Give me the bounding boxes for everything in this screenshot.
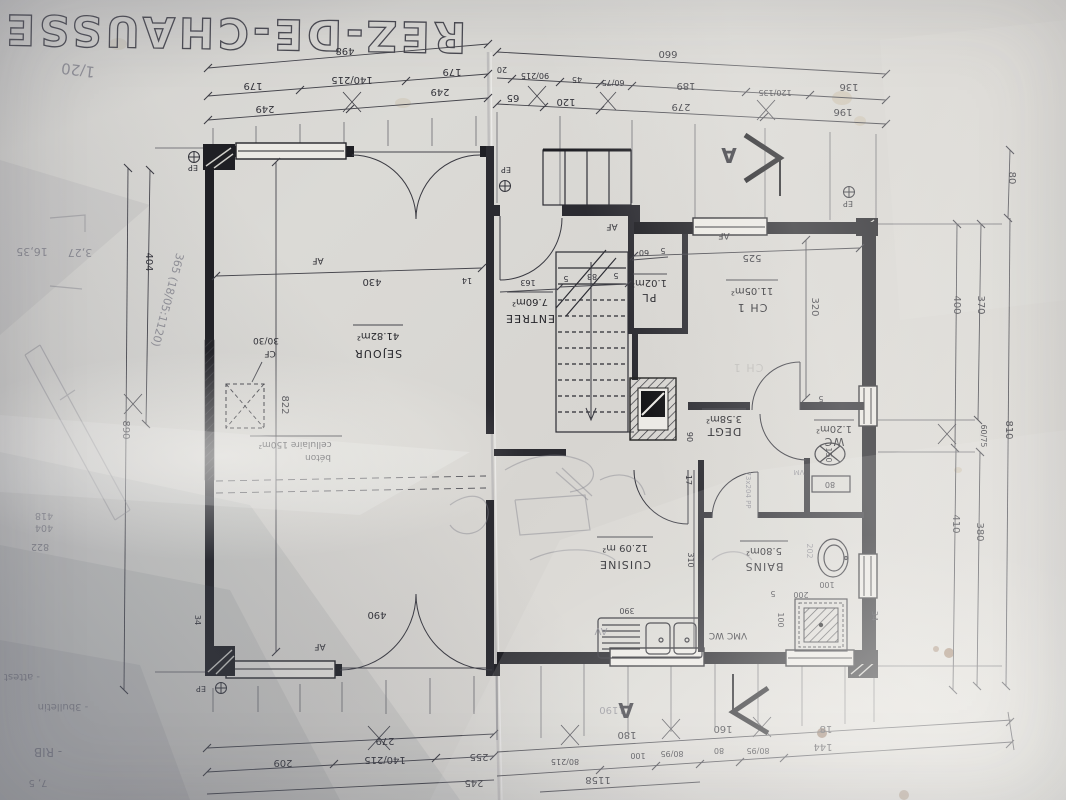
- pencil-note: - 3bulletin: [38, 701, 89, 712]
- dim-label: 430: [362, 276, 381, 287]
- walls: [203, 143, 878, 678]
- ep-label: EP: [188, 163, 198, 172]
- ep-label: EP: [501, 165, 511, 174]
- dim-label: 100: [630, 751, 645, 760]
- dim-label: 34: [870, 611, 879, 621]
- ep-label: EP: [196, 684, 206, 693]
- dim-label: 370: [975, 295, 986, 314]
- dim-label: 249: [430, 86, 449, 97]
- dim-label: 245: [464, 777, 483, 788]
- vmc-label: VMC WC: [709, 630, 747, 640]
- dim-label: 380: [974, 522, 985, 541]
- dim-chain-bottom: 279 209 140/215 255 245 180 160 18 80/21…: [203, 704, 1014, 794]
- washbasin: [818, 539, 848, 577]
- pencil-note: AV: [594, 625, 607, 636]
- dim-label: 525: [742, 252, 761, 263]
- dim-label: 150: [824, 447, 833, 462]
- dim-label: 65: [507, 92, 520, 103]
- shower: [795, 599, 847, 651]
- dim-label: 890: [120, 420, 131, 439]
- dim-label: 100: [819, 580, 834, 589]
- dim-label: 404: [143, 252, 154, 271]
- room-area-sejour: 41.82m²: [357, 330, 399, 341]
- dim-label: 144: [813, 741, 832, 752]
- dim-label: 196: [833, 106, 852, 117]
- dim-label: 209: [273, 757, 292, 768]
- window-label: AF: [606, 221, 617, 231]
- page-title: REZ-DE-CHAUSSEE: [0, 4, 467, 62]
- pencil-number: 202: [805, 543, 814, 558]
- pencil-calc: 3,27: [68, 246, 93, 259]
- dim-chain-top-right: 660 20 90/215 45 60/75 189 120/135 136 6…: [493, 48, 890, 128]
- dim-label: 200: [793, 590, 808, 599]
- cf-label: CF: [264, 348, 275, 358]
- ep-labels: EP EP EP EP: [188, 163, 853, 693]
- window-label: AF: [314, 641, 325, 651]
- dim-label: 120/135: [758, 88, 791, 97]
- dim-label: 163: [520, 278, 535, 287]
- dim-label: 180: [617, 729, 636, 740]
- room-name-wc: WC: [824, 435, 845, 448]
- dim-label: 5: [613, 271, 618, 280]
- room-name-sejour: SEJOUR: [354, 347, 402, 360]
- section-arrow-top: A: [721, 135, 780, 196]
- dim-label: 20: [497, 65, 507, 74]
- window-label: AF: [718, 230, 729, 240]
- dim-label: 120: [556, 96, 575, 107]
- dim-label: 810: [1003, 420, 1014, 439]
- room-name-degt: DEGT: [707, 425, 742, 438]
- dim-label: 18: [820, 723, 833, 734]
- dim-label: 410: [950, 514, 961, 533]
- dim-label: 5: [770, 589, 775, 598]
- room-area-ch1: 11.05m²: [731, 285, 773, 296]
- dim-label: 5: [818, 394, 823, 403]
- entry-steps: [543, 150, 631, 205]
- dim-label: 160: [713, 723, 732, 734]
- room-name-ch1: CH 1: [737, 301, 768, 314]
- room-area-degt: 3.58m²: [706, 413, 742, 424]
- dim-label: 5: [563, 274, 568, 283]
- dim-label: 279: [375, 735, 394, 746]
- dim-label: 400: [951, 295, 962, 314]
- chimney-flue: [630, 378, 676, 440]
- dim-label: 136: [839, 81, 858, 92]
- dim-label: 14: [462, 276, 472, 285]
- dim-label: 140/215: [364, 754, 406, 765]
- room-labels: 41.82m² SEJOUR 7.60m² ENTREE 1.02m² PL 1…: [353, 274, 854, 573]
- dim-label: 140/215: [331, 74, 373, 85]
- room-area-cuisine: 12.09 m²: [602, 542, 648, 553]
- pencil-number: 418: [35, 510, 53, 521]
- room-name-bains: BAINS: [744, 560, 783, 573]
- floorplan-drawing: REZ-DE-CHAUSSEE 498 179 140/215 179 249 …: [0, 0, 1066, 800]
- room-area-wc: 1.20m²: [816, 423, 852, 434]
- dim-label: 249: [255, 103, 274, 114]
- dim-label: 90: [685, 432, 694, 442]
- cf-duct: [226, 362, 264, 428]
- room-area-pl: 1.02m²: [631, 277, 667, 288]
- section-label: A: [721, 143, 737, 167]
- dim-label: 490: [367, 609, 386, 620]
- dim-label: 279: [671, 101, 690, 112]
- pencil-note: - attest: [4, 671, 40, 682]
- dim-label: 60/75: [979, 424, 988, 447]
- dim-label: 310: [686, 552, 695, 567]
- light-shadows: [0, 20, 1066, 800]
- room-name-entree: ENTREE: [505, 312, 555, 325]
- dim-label: 17: [684, 475, 693, 485]
- ep-label: EP: [843, 199, 853, 208]
- extension-lines: [213, 112, 876, 740]
- dim-label: 80/215: [551, 757, 579, 766]
- dim-label: 34: [193, 615, 202, 625]
- dim-label: 179: [243, 80, 262, 91]
- pencil-note: - RIB: [34, 745, 62, 759]
- dim-label: 83: [587, 272, 597, 281]
- dashed-slab-line: [216, 476, 486, 493]
- dim-label: 80/95: [746, 746, 769, 755]
- material-note: béton: [305, 452, 331, 463]
- pencil-number: 822: [31, 541, 49, 552]
- dim-label: 390: [619, 606, 634, 615]
- section-arrow-bottom: A: [618, 674, 768, 733]
- pencil-number: 404: [35, 522, 53, 533]
- pencil-note: VM: [794, 468, 805, 476]
- dim-label: 5: [660, 246, 665, 255]
- room-name-cuisine: CUISINE: [599, 558, 651, 571]
- dim-label: 60/75: [601, 78, 624, 87]
- dim-label: 80/95: [660, 749, 683, 758]
- dim-label: 320: [809, 297, 820, 316]
- sheet-title: REZ-DE-CHAUSSEE: [0, 4, 467, 62]
- dim-chain-right: 80 370 400 60/75 810 380 410: [878, 146, 1017, 694]
- floorplan-photo: REZ-DE-CHAUSSEE 498 179 140/215 179 249 …: [0, 0, 1066, 800]
- room-area-bains: 5.80m²: [746, 545, 782, 556]
- dim-label: 80: [825, 480, 835, 489]
- dim-label: 90/215: [521, 71, 549, 80]
- window-label: AF: [312, 255, 323, 265]
- room-name-pl: PL: [642, 291, 657, 304]
- dim-label: 100: [776, 612, 785, 627]
- dim-label: 255: [469, 751, 488, 762]
- ghost-text: CH 1: [733, 361, 764, 374]
- dim-label: 498: [335, 45, 354, 56]
- dim-label: 80: [1006, 172, 1017, 185]
- pencil-door-size: 73x204 PP: [744, 471, 752, 508]
- cf-label: 30/30: [253, 335, 279, 345]
- dim-chain-left: 404 890 34: [120, 148, 205, 694]
- dim-label: 660: [658, 48, 677, 59]
- room-area-entree: 7.60m²: [512, 296, 548, 307]
- section-label: A: [618, 698, 634, 722]
- pencil-calc: 16,35: [16, 245, 48, 258]
- pencil-note: 7, 5: [28, 777, 47, 788]
- pencil-scale: 1/20: [60, 59, 96, 81]
- dim-label: 80: [714, 746, 724, 755]
- dim-label: 822: [279, 395, 290, 414]
- material-note: cellulaire 150m²: [258, 439, 332, 449]
- dim-label: 189: [676, 80, 695, 91]
- dim-label: 1158: [585, 774, 610, 785]
- dim-label: 179: [442, 66, 461, 77]
- dim-label: 45: [572, 75, 582, 84]
